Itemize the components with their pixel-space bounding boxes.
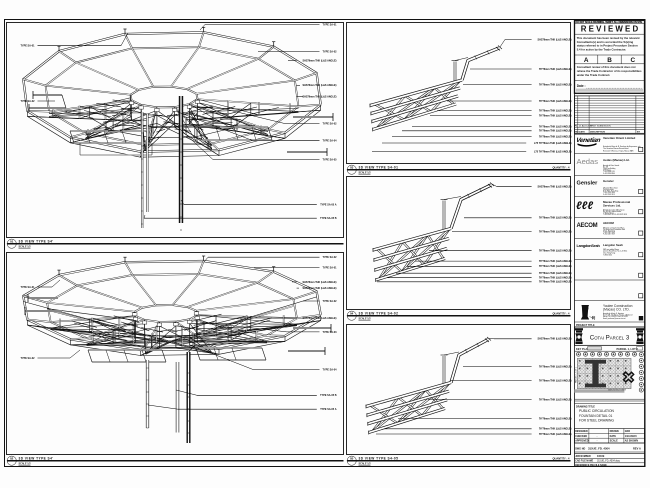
svg-text:AECOM: AECOM	[603, 221, 614, 225]
svg-text:76*76mm THK (L&S ANGLE): 76*76mm THK (L&S ANGLE)	[539, 398, 572, 401]
svg-text:76*76mm THK (L&S ANGLE): 76*76mm THK (L&S ANGLE)	[539, 231, 572, 234]
svg-text:GKD: GKD	[625, 430, 631, 433]
svg-text:SHS76mm THK (L&S ANGLE): SHS76mm THK (L&S ANGLE)	[537, 38, 571, 41]
svg-text:JOB NUMBER: JOB NUMBER	[575, 456, 591, 458]
svg-text:TYPE SA-01: TYPE SA-01	[21, 286, 36, 289]
svg-text:COTAI PARCEL 3: COTAI PARCEL 3	[590, 335, 630, 342]
svg-text:76*76mm THK (L&S ANGLE): 76*76mm THK (L&S ANGLE)	[539, 114, 572, 117]
svg-text:L75 76*76mm THK (L&S ANGLE): L75 76*76mm THK (L&S ANGLE)	[534, 142, 572, 145]
svg-text:¨º利: ¨º利	[590, 315, 596, 320]
svg-text:76*76mm THK (L&S ANGLE): 76*76mm THK (L&S ANGLE)	[539, 84, 572, 87]
svg-text:SCALE 1/2: SCALE 1/2	[359, 171, 372, 174]
svg-text:TYPE SA-05 B: TYPE SA-05 B	[320, 217, 337, 220]
svg-text:PUBLIC CIRCULATION: PUBLIC CIRCULATION	[579, 409, 615, 413]
svg-text:76*76mm THK (L&S ANGLE): 76*76mm THK (L&S ANGLE)	[539, 68, 572, 71]
svg-text:76*76mm THK (L&S ANGLE): 76*76mm THK (L&S ANGLE)	[539, 379, 572, 382]
svg-text:76*76mm THK (L&S ANGLE): 76*76mm THK (L&S ANGLE)	[539, 130, 572, 133]
svg-text:76*76mm THK (L&S ANGLE): 76*76mm THK (L&S ANGLE)	[539, 265, 572, 268]
svg-text:KEY PLAN: KEY PLAN	[576, 347, 589, 351]
svg-text:TYPE SA-05 A: TYPE SA-05 A	[320, 204, 337, 207]
svg-text:AS SHOWN: AS SHOWN	[625, 440, 638, 443]
svg-text:LangdonSeah: LangdonSeah	[577, 243, 601, 248]
svg-text:TYPE SA-02: TYPE SA-02	[323, 123, 338, 126]
svg-text:TYPE SA-02: TYPE SA-02	[323, 50, 338, 53]
svg-text:AECOM: AECOM	[577, 223, 598, 229]
svg-text:315UE_FD_4504.dwg: 315UE_FD_4504.dwg	[597, 461, 620, 463]
svg-text:This document has been revised: This document has been revised by the re…	[577, 36, 640, 40]
svg-text:SCALE 1/2: SCALE 1/2	[359, 317, 372, 320]
svg-text:76*76mm THK (L&S ANGLE): 76*76mm THK (L&S ANGLE)	[539, 365, 572, 368]
svg-text:TYPE SA-01: TYPE SA-01	[323, 266, 338, 269]
svg-text:DATE: DATE	[579, 130, 585, 133]
svg-text:TYPE SA-05 B: TYPE SA-05 B	[320, 394, 337, 397]
svg-text:TYPE SA-03: TYPE SA-03	[323, 331, 338, 334]
svg-text:Services Ltd.: Services Ltd.	[603, 204, 621, 208]
svg-text:R E V I E W E D: R E V I E W E D	[581, 24, 639, 33]
svg-text:DATE: DATE	[610, 435, 617, 438]
svg-text:A: A	[584, 57, 589, 64]
svg-text:04: 04	[350, 312, 354, 316]
svg-text:SHS76mm THK (L&S ANGLE): SHS76mm THK (L&S ANGLE)	[302, 59, 336, 62]
svg-text:02: 02	[10, 457, 14, 461]
svg-text:14/AUG/15: 14/AUG/15	[625, 435, 638, 438]
svg-text:TYPE SA-05: TYPE SA-05	[323, 159, 338, 162]
svg-text:76*76mm THK (L&S ANGLE): 76*76mm THK (L&S ANGLE)	[539, 110, 572, 113]
svg-text:TYPE SA-02: TYPE SA-02	[21, 100, 36, 103]
svg-text:TYPE SA-02: TYPE SA-02	[323, 256, 338, 259]
svg-text:SCALE 1/2: SCALE 1/2	[19, 245, 32, 248]
svg-text:FIRST SUBMISSION: FIRST SUBMISSION	[590, 126, 611, 128]
svg-text:01: 01	[10, 240, 14, 244]
svg-text:76*76mm THK (L&S ANGLE): 76*76mm THK (L&S ANGLE)	[539, 277, 572, 280]
svg-text:FOR STEEL DRAWING: FOR STEEL DRAWING	[579, 418, 614, 422]
svg-text:76*76mm THK (L&S ANGLE): 76*76mm THK (L&S ANGLE)	[539, 417, 572, 420]
svg-text:F +852 2591 9313: F +852 2591 9313	[603, 194, 615, 196]
svg-text:76*76mm THK (L&S ANGLE): 76*76mm THK (L&S ANGLE)	[539, 260, 572, 263]
svg-text:DRAWN: DRAWN	[610, 430, 619, 433]
svg-text:76*76mm THK (L&S ANGLE): 76*76mm THK (L&S ANGLE)	[539, 250, 572, 253]
svg-text:REFERENCE DW FILE NAME: REFERENCE DW FILE NAME	[575, 464, 607, 467]
svg-text:Consultants(s) and is accorded: Consultants(s) and is accorded the %(s)i…	[577, 40, 634, 44]
svg-text:05: 05	[350, 457, 354, 461]
svg-text:SHS76mm THK (L&S ANGLE): SHS76mm THK (L&S ANGLE)	[302, 96, 336, 99]
svg-text:SCALE 1/2: SCALE 1/2	[359, 462, 372, 465]
svg-text:CHECKED: CHECKED	[575, 435, 587, 438]
svg-text:CAD FILE NAME: CAD FILE NAME	[575, 460, 593, 463]
svg-text:T +853 2875 3215 F +853 2875: T +853 2875 3215 F +853 2875 3218	[603, 214, 627, 216]
svg-text:76*76mm THK (L&S ANGLE): 76*76mm THK (L&S ANGLE)	[539, 433, 572, 436]
svg-text:315UE_FD_4504: 315UE_FD_4504	[588, 446, 610, 450]
svg-text:TYPE SA-05 A: TYPE SA-05 A	[320, 408, 337, 411]
svg-text:76*76mm THK (L&S ANGLE): 76*76mm THK (L&S ANGLE)	[539, 100, 572, 103]
svg-text:PARCEL 1, LOT 1: PARCEL 1, LOT 1	[575, 366, 578, 383]
svg-text:APPROVED: APPROVED	[575, 440, 589, 443]
svg-text:Consultant review of this docu: Consultant review of this document does …	[577, 65, 636, 69]
svg-text:76*76mm THK (L&S ANGLE): 76*76mm THK (L&S ANGLE)	[539, 272, 572, 275]
svg-text:L75 76*76mm THK (L&S ANGLE): L75 76*76mm THK (L&S ANGLE)	[534, 150, 572, 153]
svg-text:SHS76mm THK (L&S ANGLE): SHS76mm THK (L&S ANGLE)	[302, 84, 336, 87]
svg-text:Venetian Orient Limited: Venetian Orient Limited	[603, 136, 636, 140]
svg-text:relieve the Trade Contractor o: relieve the Trade Contractor of its resp…	[577, 69, 642, 73]
svg-text:03: 03	[350, 166, 354, 170]
svg-text:SHS76mm THK (L&S ANGLE): SHS76mm THK (L&S ANGLE)	[302, 287, 336, 290]
svg-text:SHS76mm THK (L&S ANGLE): SHS76mm THK (L&S ANGLE)	[302, 281, 336, 284]
svg-text:status referred to in Projec: status referred to in Project Procedure …	[577, 44, 638, 48]
svg-text:T 2830 3500: T 2830 3500	[603, 255, 612, 257]
svg-text:TYPE SA-01: TYPE SA-01	[21, 45, 36, 48]
svg-text:(Macau) CO. LTD.: (Macau) CO. LTD.	[603, 308, 630, 312]
svg-text:DWG NO: DWG NO	[575, 447, 585, 450]
svg-text:C: C	[630, 57, 635, 64]
svg-text:5.4 for action by the Trade Co: 5.4 for action by the Trade Contractor.	[577, 48, 627, 52]
svg-text:Gensler: Gensler	[577, 180, 599, 186]
svg-text:B: B	[607, 57, 612, 64]
svg-text:Langdon Seah: Langdon Seah	[603, 243, 623, 247]
svg-text:Aedas (Macau) Ltd.: Aedas (Macau) Ltd.	[603, 158, 630, 162]
svg-text:76*76mm THK (L&S ANGLE): 76*76mm THK (L&S ANGLE)	[539, 428, 572, 431]
svg-text:ℓℓℓ: ℓℓℓ	[576, 200, 593, 212]
svg-text:Chai, Hong Kong: Chai, Hong Kong	[603, 253, 615, 255]
svg-text:76*76mm THK (L&S ANGLE): 76*76mm THK (L&S ANGLE)	[539, 136, 572, 139]
svg-text:Gensler: Gensler	[603, 179, 615, 183]
svg-text:76*76mm THK (L&S ANGLE): 76*76mm THK (L&S ANGLE)	[539, 126, 572, 129]
svg-text:FOUNTAIN DETAIL 01: FOUNTAIN DETAIL 01	[579, 414, 612, 418]
svg-text:TYPE SA-02: TYPE SA-02	[21, 357, 36, 360]
svg-text:PARCEL 1, LOT 2: PARCEL 1, LOT 2	[617, 347, 639, 351]
svg-text:TYPE SA-01: TYPE SA-01	[323, 23, 338, 26]
svg-text:SHS76mm THK (L&S ANGLE): SHS76mm THK (L&S ANGLE)	[537, 186, 571, 189]
svg-text:SCALE: SCALE	[610, 440, 619, 443]
svg-text:DESIGNED: DESIGNED	[575, 430, 588, 433]
svg-text:DRAWING TITLE: DRAWING TITLE	[576, 406, 595, 409]
svg-text:MAIN HOTEL TOWER: MAIN HOTEL TOWER	[608, 389, 627, 392]
svg-text:Executive Offices-L2, Taipa, M: Executive Offices-L2, Taipa, Macao SAR	[603, 149, 634, 152]
svg-text:Date :: Date :	[577, 84, 586, 88]
svg-text:SHS76mm THK (L&S ANGLE): SHS76mm THK (L&S ANGLE)	[302, 317, 336, 320]
svg-text:76*76mm THK (L&S ANGLE): 76*76mm THK (L&S ANGLE)	[539, 281, 572, 284]
svg-text:REV A: REV A	[633, 446, 641, 450]
svg-text:SHS76mm THK (L&S ANGLE): SHS76mm THK (L&S ANGLE)	[537, 338, 571, 341]
svg-text:76*76mm THK (L&S ANGLE): 76*76mm THK (L&S ANGLE)	[539, 217, 572, 220]
svg-text:TYPE SA-04: TYPE SA-04	[323, 140, 338, 143]
svg-text:Macau, Tel: 28787311 Fax: 287: Macau, Tel: 28787311 Fax: 28787312	[603, 316, 628, 318]
svg-text:Aedas: Aedas	[577, 157, 599, 166]
svg-text:F +853 2830 9966: F +853 2830 9966	[603, 173, 615, 175]
svg-text:TYPE SA-02: TYPE SA-02	[323, 300, 338, 303]
svg-text:315UE: 315UE	[597, 455, 605, 458]
svg-text:Venetian: Venetian	[576, 137, 602, 144]
svg-text:SCALE 1/2: SCALE 1/2	[19, 462, 32, 465]
svg-text:F +852 2317 7609: F +852 2317 7609	[603, 234, 615, 236]
svg-text:under the Trade Contract.: under the Trade Contract.	[577, 73, 611, 77]
svg-text:38/F was added Tower: 38/F was added Tower	[603, 249, 619, 251]
svg-text:TYPE SA-04: TYPE SA-04	[323, 368, 338, 371]
